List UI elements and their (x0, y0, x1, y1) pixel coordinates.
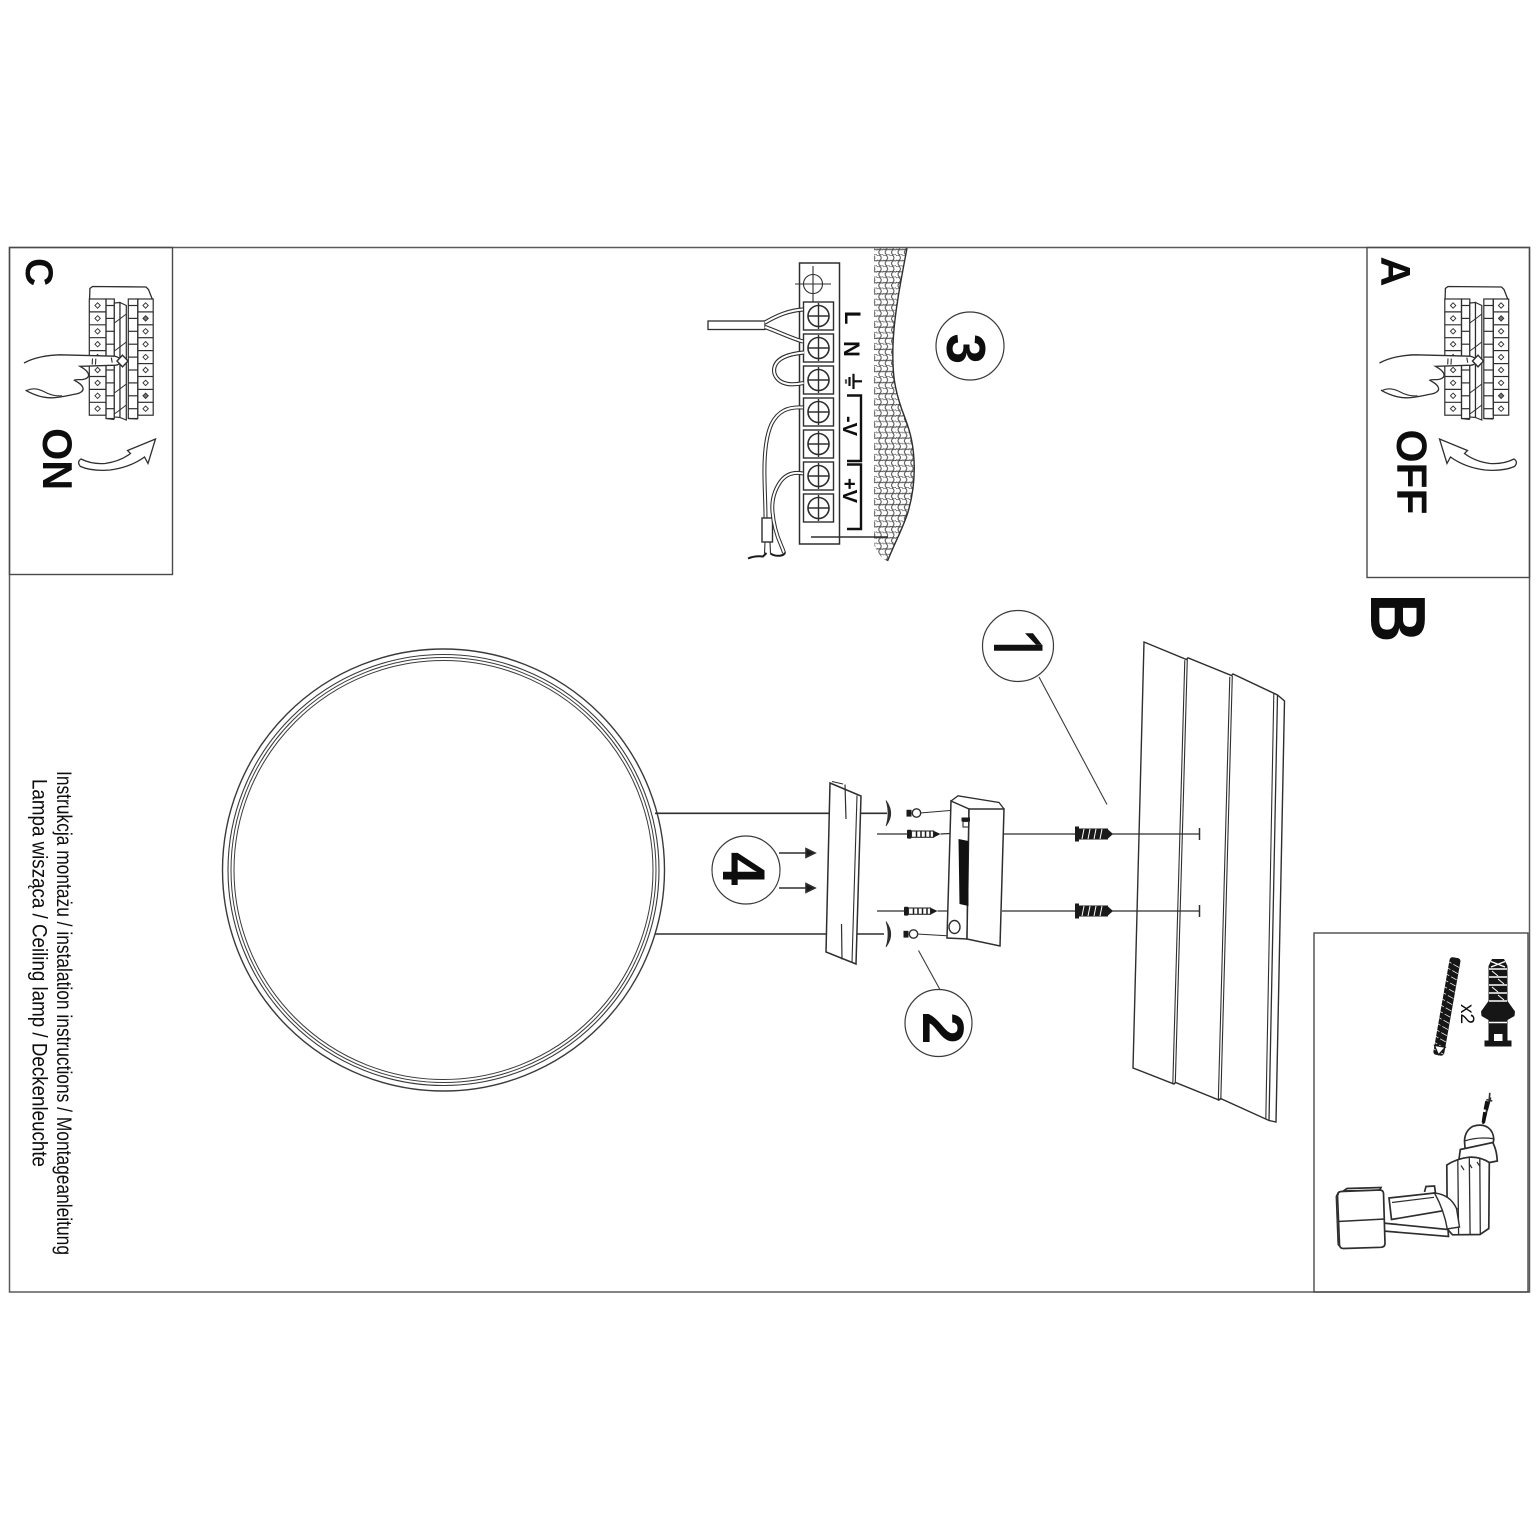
svg-text:B: B (1354, 594, 1440, 643)
svg-text:OFF: OFF (1387, 430, 1434, 515)
svg-text:Instrukcja montażu / instalati: Instrukcja montażu / instalation instruc… (52, 771, 75, 1255)
svg-text:2: 2 (910, 1012, 975, 1044)
svg-text:x2: x2 (1456, 1004, 1477, 1024)
svg-text:C: C (17, 258, 60, 286)
svg-text:A: A (1372, 257, 1419, 287)
svg-text:ON: ON (34, 428, 81, 490)
svg-text:N: N (839, 341, 864, 357)
svg-text:+V: +V (838, 478, 860, 504)
svg-text:3: 3 (935, 334, 997, 365)
svg-text:-V: -V (838, 416, 860, 437)
svg-text:Lampa wisząca / Ceiling lamp /: Lampa wisząca / Ceiling lamp / Deckenleu… (28, 779, 51, 1167)
svg-text:4: 4 (710, 852, 777, 886)
svg-text:L: L (840, 311, 865, 324)
